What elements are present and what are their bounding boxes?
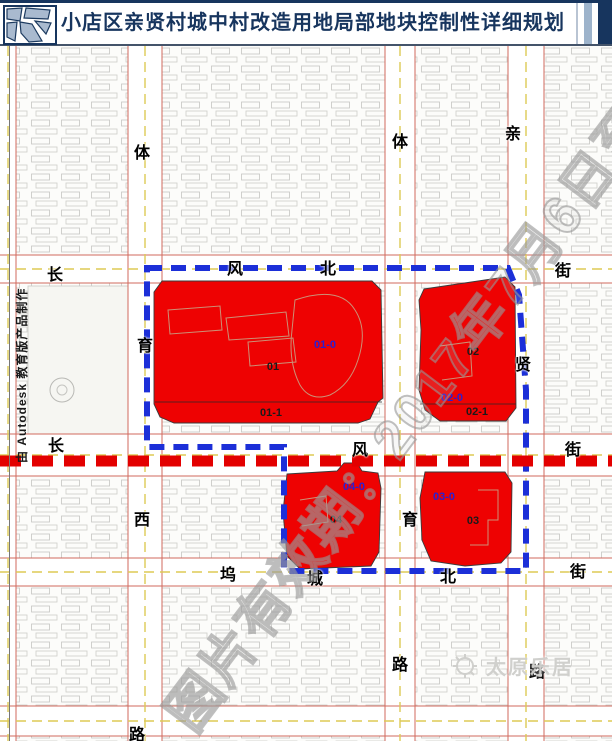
street-name-char: 贤 — [515, 351, 531, 375]
page-title: 小店区亲贤村城中村改造用地局部地块控制性详细规划 — [60, 3, 566, 44]
title-bar: 小店区亲贤村城中村改造用地局部地块控制性详细规划 — [0, 0, 612, 46]
street-name-char: 育 — [402, 506, 418, 530]
header-accent-bar-dark — [598, 3, 612, 44]
street-name-char: 街 — [570, 558, 586, 582]
street-name-char: 体 — [134, 139, 150, 163]
street-name-char: 北 — [440, 563, 456, 587]
brand-watermark: 太原乐居 — [452, 651, 574, 680]
street-name-char: 北 — [320, 255, 336, 279]
header-divider-bar — [576, 3, 578, 44]
street-name-char: 育 — [137, 332, 153, 356]
planning-map-page: 小店区亲贤村城中村改造用地局部地块控制性详细规划 — [0, 0, 612, 741]
header-accent-bar-light — [584, 3, 592, 44]
plot-label-01-0: 01-0 — [314, 339, 336, 351]
base-map-drawing — [0, 46, 612, 741]
street-name-char: 长 — [48, 432, 64, 456]
plot-label-01: 01 — [267, 361, 279, 373]
planning-map-canvas: 体体亲长风北街育贤长风街西育坞城北街路路路01-00101-10202-002-… — [0, 46, 612, 741]
park-block — [28, 286, 128, 436]
plot-label-03-0: 03-0 — [433, 491, 455, 503]
street-name-char: 体 — [392, 128, 408, 152]
leju-logo-icon — [452, 653, 478, 679]
plot-label-01-1: 01-1 — [260, 407, 282, 419]
autodesk-credit-text: 由 Autodesk 教育版产品制作 — [13, 288, 30, 463]
street-name-char: 路 — [392, 651, 408, 675]
street-name-char: 长 — [47, 261, 63, 285]
street-name-char: 亲 — [505, 120, 521, 144]
street-name-char: 风 — [227, 255, 243, 279]
map-frame-line — [9, 46, 10, 741]
planning-bureau-logo-icon — [3, 5, 57, 45]
street-name-char: 路 — [129, 721, 145, 741]
street-name-char: 西 — [134, 506, 150, 530]
plot-label-02-1: 02-1 — [466, 406, 488, 418]
plot-label-03: 03 — [467, 515, 479, 527]
street-name-char: 街 — [565, 436, 581, 460]
brand-watermark-text: 太原乐居 — [486, 651, 574, 680]
